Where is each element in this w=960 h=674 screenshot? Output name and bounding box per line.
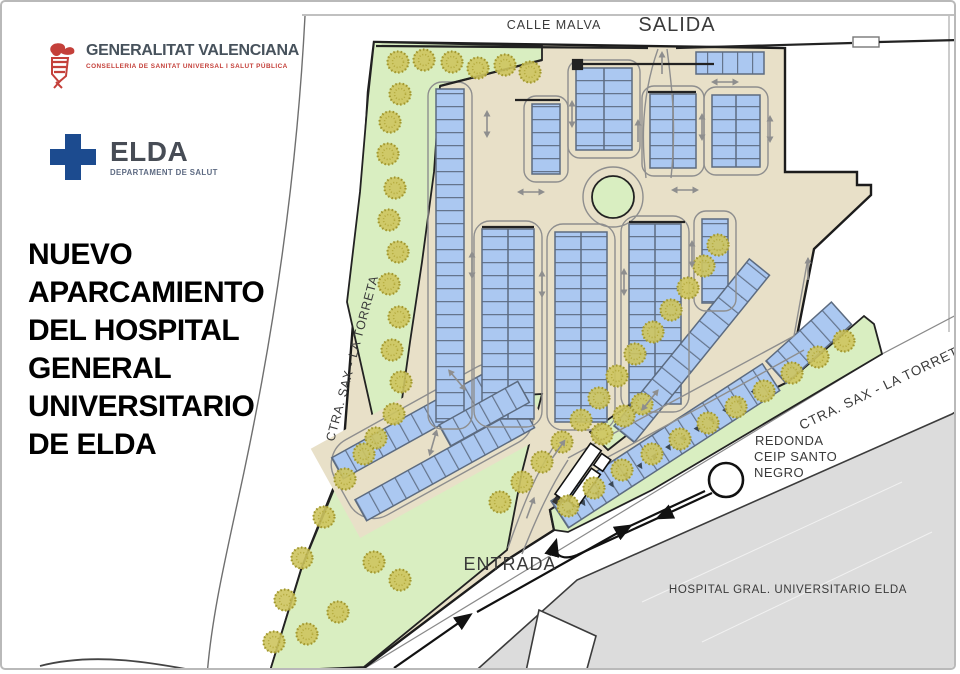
elda-dept: DEPARTAMENT DE SALUT: [110, 168, 218, 177]
roundabout-label-1: REDONDA: [755, 433, 824, 448]
elda-logo: ELDA DEPARTAMENT DE SALUT: [50, 134, 218, 180]
generalitat-name: GENERALITAT VALENCIANA: [86, 42, 299, 60]
roundabout-circle: [709, 463, 743, 497]
exit-label: SALIDA: [638, 14, 715, 36]
generalitat-logo: GENERALITAT VALENCIANA CONSELLERIA DE SA…: [46, 42, 299, 92]
roundabout-label-3: NEGRO: [754, 465, 804, 480]
entrance-label: ENTRADA: [463, 554, 556, 574]
interior-roundabout: [592, 176, 634, 218]
hospital-label: HOSPITAL GRAL. UNIVERSITARIO ELDA: [669, 584, 907, 596]
elda-name: ELDA: [110, 138, 218, 166]
generalitat-emblem-icon: [46, 42, 80, 92]
page-title: NUEVO APARCAMIENTO DEL HOSPITAL GENERAL …: [28, 236, 264, 464]
roundabout-label-2: CEIP SANTO: [754, 449, 837, 464]
health-cross-icon: [50, 134, 96, 180]
street-top-label: CALLE MALVA: [507, 18, 602, 32]
plan-frame: CALLE MALVA SALIDA ENTRADA CTRA. SAX - L…: [0, 0, 956, 670]
generalitat-dept: CONSELLERIA DE SANITAT UNIVERSAL I SALUT…: [86, 63, 299, 70]
